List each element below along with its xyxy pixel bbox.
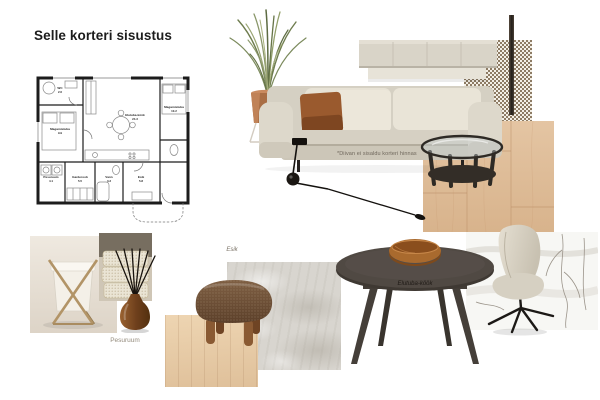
back-cushion-right <box>393 88 481 130</box>
chair-base-legs <box>489 296 553 332</box>
diffuser-reeds <box>116 249 155 298</box>
svg-text:4.1: 4.1 <box>49 179 53 183</box>
chair-seat <box>493 273 545 300</box>
wall-cabinet-image <box>357 36 499 84</box>
rust-pillow <box>300 92 344 135</box>
lamp-arm-1 <box>293 145 297 174</box>
floor-plan: WC2.6 Magamistuba9.9 Elutuba-köök24.3 Ma… <box>35 70 190 225</box>
svg-text:24.3: 24.3 <box>132 117 138 121</box>
dining-chair-image <box>476 220 560 338</box>
svg-text:5.8: 5.8 <box>139 179 143 183</box>
lamp-arm-3 <box>328 189 415 215</box>
wooden-bowl-image <box>389 239 441 266</box>
hamper-bag <box>53 265 93 311</box>
svg-text:10.2: 10.2 <box>171 109 177 113</box>
hamper-bag-fold <box>51 262 95 271</box>
page-title: Selle korteri sisustus <box>34 28 172 43</box>
dining-table-legs <box>351 282 479 364</box>
pouf-image <box>188 274 280 348</box>
moodboard: Selle korteri sisustus <box>0 0 600 400</box>
wall-lamp-image <box>282 132 432 227</box>
chair-shadow <box>493 329 547 336</box>
svg-text:5.5: 5.5 <box>78 179 82 183</box>
ball-highlight <box>289 175 292 178</box>
lamp-head <box>414 213 426 221</box>
reed-diffuser-image <box>110 248 160 333</box>
floor-lamp-pole <box>509 15 514 115</box>
label-esik: Esik <box>210 247 254 253</box>
lamp-mount <box>292 138 307 145</box>
lamp-arm-2 <box>296 183 328 189</box>
svg-text:9.9: 9.9 <box>58 131 62 135</box>
label-pesuruum: Pesuruum <box>90 337 160 344</box>
label-elutuba-kook: Elutuba-köök <box>397 281 433 287</box>
dining-table-image: Elutuba-köök <box>333 238 497 370</box>
coffee-table-shelf <box>428 165 496 183</box>
cream-pillow <box>335 90 391 132</box>
svg-text:3.3: 3.3 <box>107 179 111 183</box>
svg-text:2.6: 2.6 <box>58 90 62 94</box>
